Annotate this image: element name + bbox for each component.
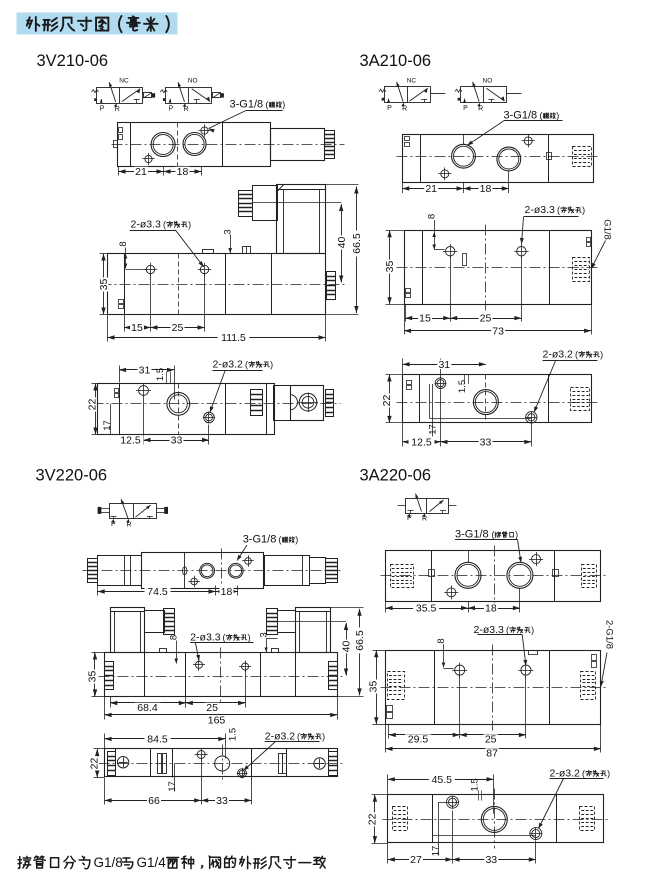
svg-text:68.4: 68.4 bbox=[137, 702, 158, 714]
svg-text:G1/8: G1/8 bbox=[94, 855, 123, 870]
svg-text:3V210-06: 3V210-06 bbox=[37, 52, 109, 70]
svg-text:(: ( bbox=[245, 360, 248, 370]
svg-text:P: P bbox=[387, 105, 392, 112]
svg-text:NO: NO bbox=[188, 78, 198, 85]
svg-text:): ) bbox=[282, 100, 285, 110]
svg-text:2-ø3.3: 2-ø3.3 bbox=[190, 632, 221, 644]
svg-text:3: 3 bbox=[259, 632, 270, 637]
svg-text:3-G1/8: 3-G1/8 bbox=[243, 534, 277, 546]
svg-text:G1/8: G1/8 bbox=[602, 219, 613, 240]
svg-text:73: 73 bbox=[492, 325, 504, 337]
svg-text:2-ø3.3: 2-ø3.3 bbox=[525, 204, 556, 216]
svg-text:66.5: 66.5 bbox=[354, 630, 366, 651]
svg-text:15: 15 bbox=[131, 322, 143, 334]
svg-text:G1/4: G1/4 bbox=[137, 855, 167, 870]
svg-text:2-ø3.2: 2-ø3.2 bbox=[543, 349, 574, 361]
svg-text:8: 8 bbox=[118, 241, 129, 246]
svg-text:22: 22 bbox=[381, 395, 393, 407]
svg-text:): ) bbox=[248, 633, 251, 643]
svg-text:33: 33 bbox=[216, 795, 228, 807]
svg-text:35.5: 35.5 bbox=[416, 603, 437, 615]
svg-text:84.5: 84.5 bbox=[147, 734, 168, 746]
svg-text:NC: NC bbox=[407, 77, 417, 84]
svg-text:111.5: 111.5 bbox=[221, 332, 246, 344]
svg-text:(: ( bbox=[223, 633, 226, 643]
svg-text:21: 21 bbox=[425, 183, 437, 195]
svg-text:NC: NC bbox=[119, 78, 129, 85]
svg-text:(: ( bbox=[163, 220, 166, 230]
svg-text:40: 40 bbox=[341, 641, 353, 653]
svg-text:1.5: 1.5 bbox=[227, 728, 238, 741]
svg-text:8: 8 bbox=[427, 214, 438, 219]
svg-text:35: 35 bbox=[384, 261, 396, 273]
svg-text:2-G1/8: 2-G1/8 bbox=[604, 620, 615, 649]
svg-text:): ) bbox=[322, 732, 325, 742]
svg-text:25: 25 bbox=[172, 322, 184, 334]
svg-text:15: 15 bbox=[419, 313, 431, 325]
svg-text:(: ( bbox=[575, 350, 578, 360]
svg-text:18: 18 bbox=[177, 166, 189, 178]
svg-text:87: 87 bbox=[486, 748, 498, 760]
svg-text:(: ( bbox=[540, 111, 543, 121]
svg-text:3V220-06: 3V220-06 bbox=[36, 467, 108, 485]
svg-text:33: 33 bbox=[171, 435, 183, 447]
svg-text:2-ø3.2: 2-ø3.2 bbox=[265, 731, 296, 743]
svg-text:35: 35 bbox=[368, 681, 380, 693]
svg-text:): ) bbox=[556, 111, 559, 121]
svg-text:2-ø3.2: 2-ø3.2 bbox=[550, 768, 581, 780]
svg-text:40: 40 bbox=[336, 237, 348, 249]
svg-text:66.5: 66.5 bbox=[351, 233, 363, 254]
svg-text:33: 33 bbox=[485, 854, 497, 866]
svg-text:(: ( bbox=[279, 535, 282, 545]
svg-text:3-G1/8: 3-G1/8 bbox=[455, 529, 489, 541]
svg-text:2-ø3.3: 2-ø3.3 bbox=[131, 219, 162, 231]
svg-text:8: 8 bbox=[169, 635, 180, 640]
svg-text:74.5: 74.5 bbox=[147, 586, 168, 598]
svg-text:1.5: 1.5 bbox=[155, 368, 166, 381]
svg-text:17: 17 bbox=[428, 424, 439, 435]
svg-text:27: 27 bbox=[410, 854, 422, 866]
svg-text:1.5: 1.5 bbox=[470, 778, 481, 791]
svg-text:12.5: 12.5 bbox=[120, 435, 141, 447]
svg-text:3-G1/8: 3-G1/8 bbox=[504, 110, 538, 122]
svg-text:22: 22 bbox=[87, 399, 99, 411]
svg-text:3: 3 bbox=[223, 229, 234, 234]
svg-text:66: 66 bbox=[148, 795, 160, 807]
svg-text:22: 22 bbox=[89, 758, 101, 770]
svg-text:R: R bbox=[402, 106, 407, 113]
svg-text:P: P bbox=[169, 106, 174, 113]
svg-text:18: 18 bbox=[221, 586, 233, 598]
svg-text:25: 25 bbox=[485, 734, 497, 746]
svg-text:): ) bbox=[270, 360, 273, 370]
svg-text:45.5: 45.5 bbox=[432, 774, 453, 786]
svg-text:): ) bbox=[188, 220, 191, 230]
svg-text:31: 31 bbox=[438, 359, 450, 371]
svg-text:12.5: 12.5 bbox=[411, 437, 432, 449]
svg-text:17: 17 bbox=[431, 846, 442, 857]
svg-text:21: 21 bbox=[135, 166, 147, 178]
svg-text:29.5: 29.5 bbox=[408, 734, 429, 746]
svg-text:2-ø3.2: 2-ø3.2 bbox=[213, 359, 244, 371]
svg-text:R: R bbox=[115, 106, 120, 113]
svg-text:35: 35 bbox=[87, 671, 99, 683]
svg-text:(: ( bbox=[266, 100, 269, 110]
svg-text:R: R bbox=[127, 522, 132, 529]
svg-text:8: 8 bbox=[436, 638, 447, 643]
svg-text:18: 18 bbox=[485, 603, 497, 615]
svg-text:(: ( bbox=[557, 205, 560, 215]
svg-text:): ) bbox=[515, 530, 518, 540]
svg-text:17: 17 bbox=[102, 420, 113, 431]
svg-text:): ) bbox=[600, 350, 603, 360]
svg-text:): ) bbox=[295, 535, 298, 545]
svg-text:18: 18 bbox=[480, 183, 492, 195]
svg-text:3A220-06: 3A220-06 bbox=[360, 467, 432, 485]
svg-text:165: 165 bbox=[208, 715, 226, 727]
svg-text:(: ( bbox=[297, 732, 300, 742]
svg-text:1.5: 1.5 bbox=[457, 380, 468, 393]
svg-text:(: ( bbox=[492, 530, 495, 540]
svg-text:R: R bbox=[478, 106, 483, 113]
svg-text:(: ( bbox=[582, 769, 585, 779]
svg-text:22: 22 bbox=[367, 813, 379, 825]
svg-text:31: 31 bbox=[139, 365, 151, 377]
svg-text:35: 35 bbox=[98, 279, 110, 291]
svg-text:): ) bbox=[607, 769, 610, 779]
svg-text:33: 33 bbox=[480, 437, 492, 449]
svg-text:R: R bbox=[184, 106, 189, 113]
svg-text:17: 17 bbox=[167, 781, 178, 792]
svg-text:): ) bbox=[531, 625, 534, 635]
svg-text:(: ( bbox=[506, 625, 509, 635]
svg-text:P: P bbox=[463, 105, 468, 112]
svg-text:25: 25 bbox=[206, 702, 218, 714]
svg-text:NO: NO bbox=[483, 77, 493, 84]
svg-text:3-G1/8: 3-G1/8 bbox=[230, 99, 264, 111]
svg-text:): ) bbox=[582, 205, 585, 215]
svg-text:3A210-06: 3A210-06 bbox=[360, 52, 432, 70]
svg-text:P: P bbox=[100, 106, 105, 113]
svg-text:25: 25 bbox=[480, 313, 492, 325]
